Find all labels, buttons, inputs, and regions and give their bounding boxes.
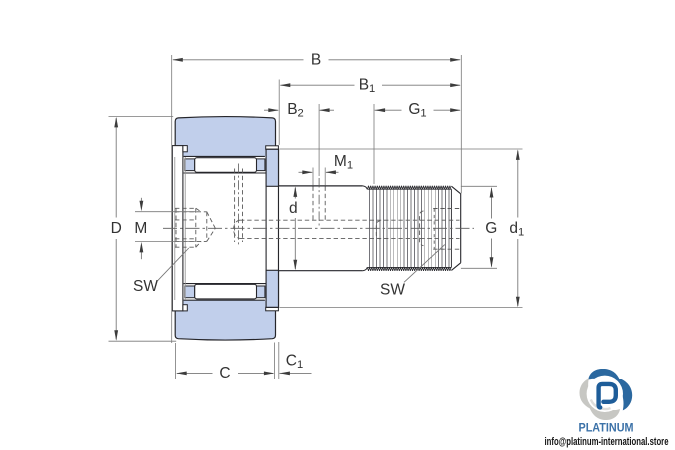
svg-text:PLATINUM: PLATINUM	[579, 423, 634, 435]
svg-text:D: D	[111, 220, 122, 237]
svg-text:C: C	[219, 365, 230, 382]
svg-text:SW: SW	[380, 281, 405, 298]
svg-text:B: B	[311, 51, 321, 68]
svg-text:M: M	[134, 220, 147, 237]
svg-text:G: G	[485, 220, 497, 237]
svg-text:d: d	[289, 200, 298, 217]
svg-text:info@platinum-international.st: info@platinum-international.store	[545, 436, 669, 448]
svg-text:SW: SW	[133, 278, 158, 295]
